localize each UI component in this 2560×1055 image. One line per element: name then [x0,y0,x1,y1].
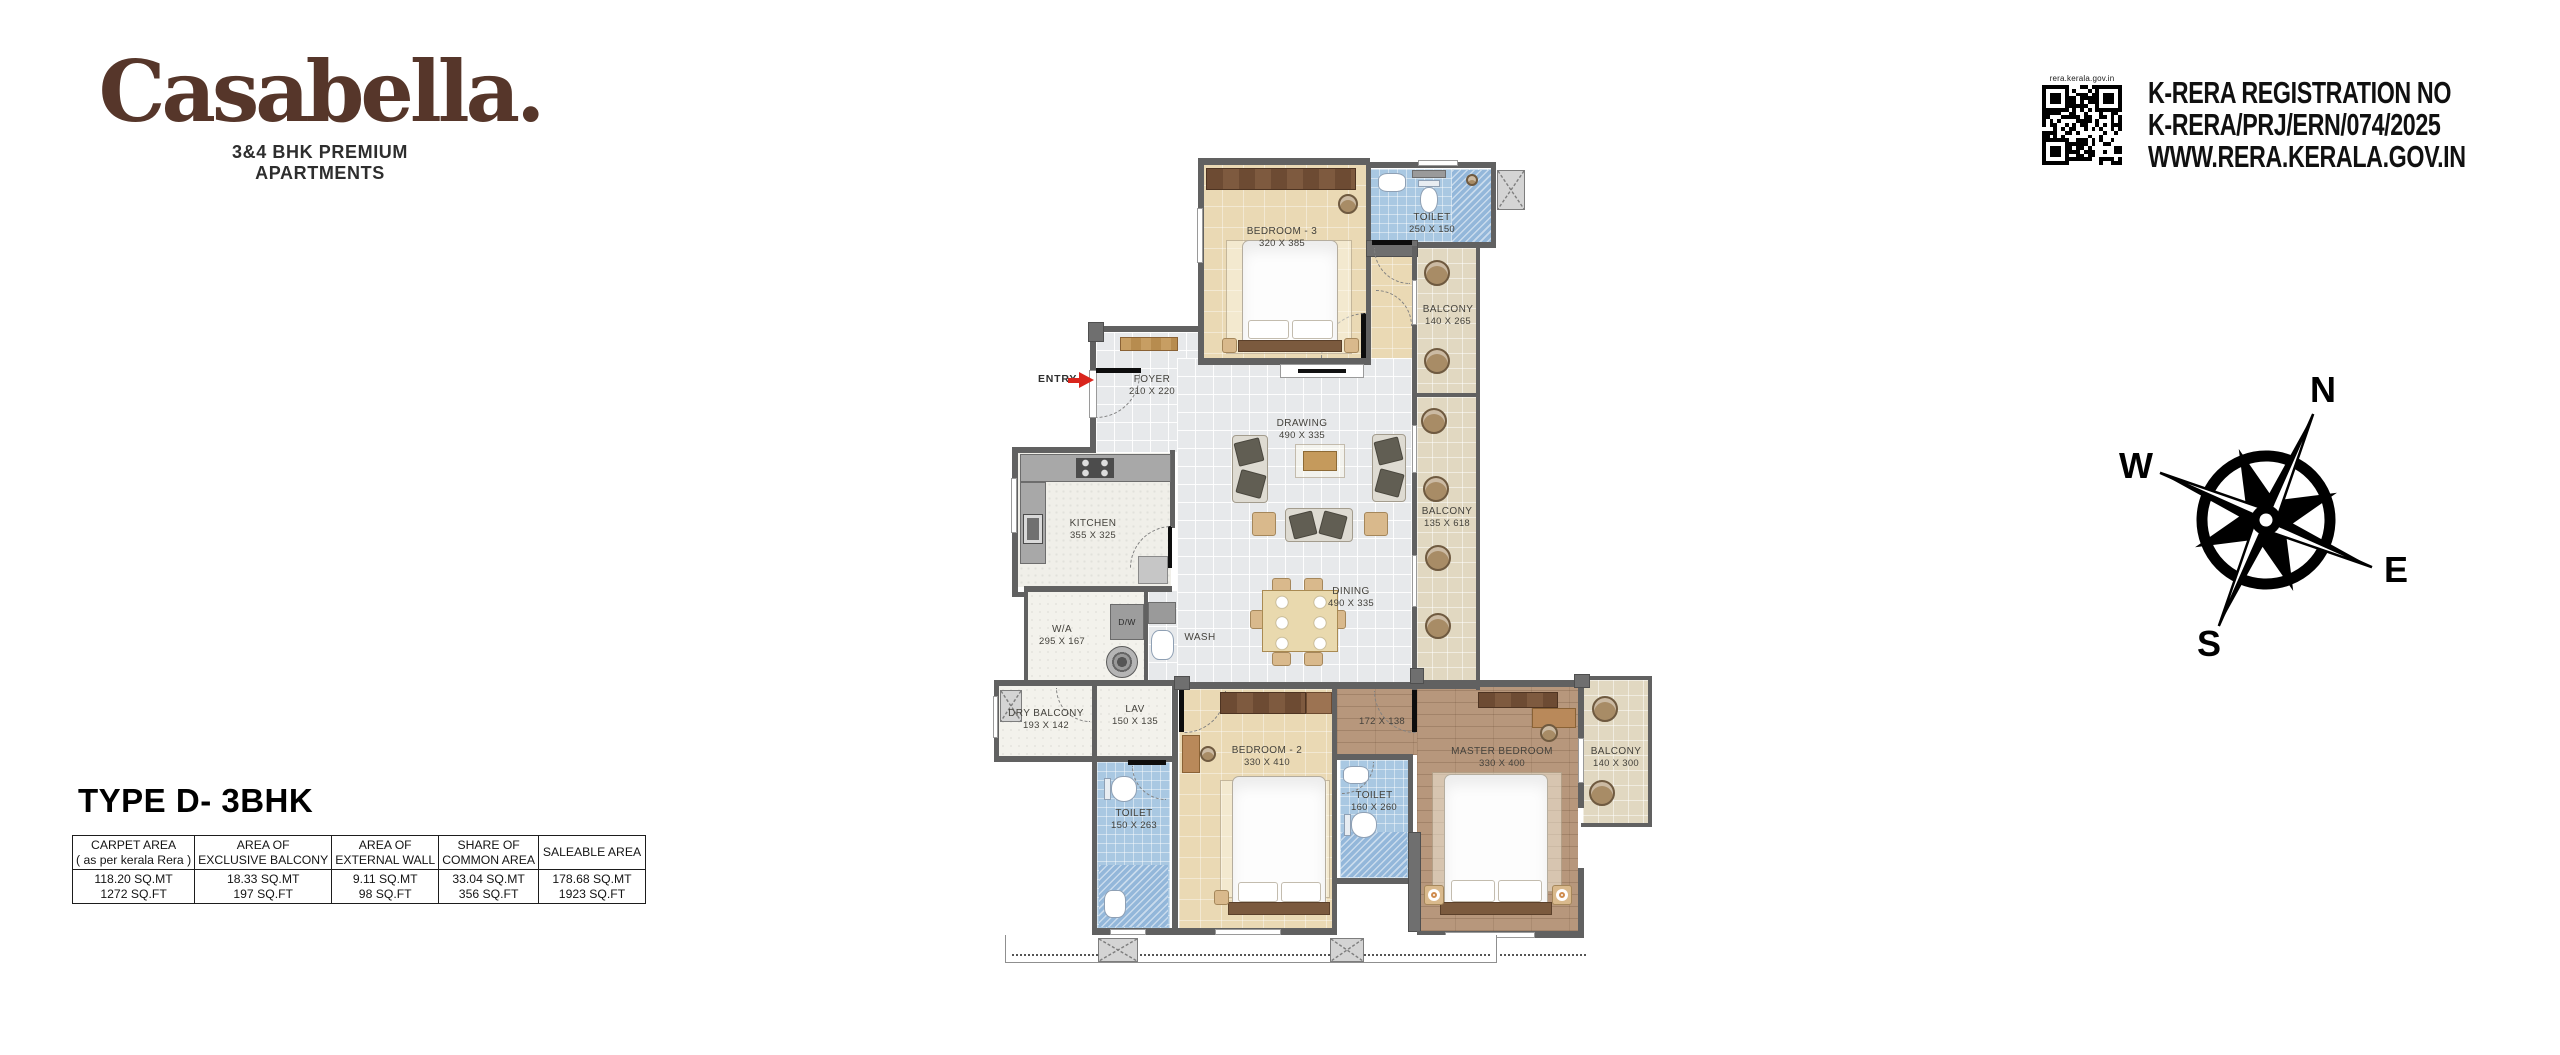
wc-icon [1111,776,1137,802]
bedroom2-side-table [1214,890,1229,905]
rera-line3: WWW.RERA.KERALA.GOV.IN [2148,141,2560,173]
header-external-wall: AREA OFEXTERNAL WALL [332,836,439,870]
duct-shaft [1497,170,1525,210]
qr-code [2042,85,2122,165]
side-table [1364,512,1388,536]
tv-icon [1298,369,1346,373]
duct-shaft [1330,938,1364,962]
wall [1578,868,1584,932]
wall [1024,592,1028,684]
qr-block: rera.kerala.gov.in [2040,74,2124,165]
hob-icon [1076,458,1114,478]
wc-tank [1418,180,1440,187]
toilet-master-label: TOILET160 X 260 [1351,790,1397,813]
compass-west-label: W [2119,445,2153,486]
compass-rose: N E S W [2106,360,2426,680]
dining-chair [1304,652,1323,666]
area-table: CARPET AREA( as per kerala Rera ) AREA O… [72,835,646,904]
duct-shaft [1098,938,1138,962]
header-common-area: SHARE OFCOMMON AREA [439,836,539,870]
bedroom2-chair [1200,746,1216,762]
wc-tank [1104,778,1111,800]
rera-line1: K-RERA REGISTRATION NO [2148,77,2560,109]
balcony-chair [1421,408,1447,434]
fridge-icon [1138,556,1168,584]
value-saleable-area: 178.68 SQ.MT1923 SQ.FT [539,870,646,904]
window [1412,425,1417,473]
washing-machine-icon [1106,646,1138,678]
window [1412,555,1417,607]
value-common-area: 33.04 SQ.MT356 SQ.FT [439,870,539,904]
balcony-chair [1424,348,1450,374]
area-table-value-row: 118.20 SQ.MT1272 SQ.FT 18.33 SQ.MT197 SQ… [73,870,646,904]
wall [1177,682,1420,689]
toilet-top-label: TOILET250 X 150 [1409,212,1455,235]
wc-icon [1351,812,1377,838]
brand-tagline-line2: APARTMENTS [85,163,555,184]
foyer-bench [1120,337,1178,351]
washbasin-icon [1104,890,1126,918]
wall [1332,682,1337,934]
wall [1417,393,1477,397]
header-carpet-area: CARPET AREA( as per kerala Rera ) [73,836,195,870]
wall [1417,684,1477,689]
dining-chair [1272,652,1291,666]
rera-line2: K-RERA/PRJ/ERN/074/2025 [2148,109,2560,141]
area-table-header-row: CARPET AREA( as per kerala Rera ) AREA O… [73,836,646,870]
bedroom2-pillow [1238,882,1278,902]
window [1418,160,1458,166]
wall [1092,680,1097,764]
side-table [1252,512,1276,536]
coffee-table [1303,451,1337,471]
window [1011,478,1017,533]
table-lamp-icon [1428,889,1440,901]
toilet-bed2-label: TOILET150 X 263 [1111,808,1157,831]
rera-registration-block: K-RERA REGISTRATION NO K-RERA/PRJ/ERN/07… [2148,77,2560,173]
bedroom2-wardrobe [1220,692,1306,714]
header-saleable-area: SALEABLE AREA [539,836,646,870]
balcony-chair [1423,476,1449,502]
bedroom3-headboard [1238,340,1342,352]
wall [1172,680,1178,934]
balcony-master-label: BALCONY140 X 300 [1591,746,1642,769]
wall [1491,162,1496,248]
washbasin-icon [1343,766,1369,784]
balcony-chair [1424,260,1450,286]
bedroom3-side-table [1344,338,1359,353]
balcony-top-label: BALCONY140 X 265 [1423,304,1474,327]
bedroom2-desk [1182,735,1200,773]
entry-arrow-icon [1079,372,1094,388]
wc-tank [1344,814,1351,836]
wall-column [1574,674,1590,688]
balcony-chair [1592,696,1618,722]
wall [1092,326,1202,332]
washbasin-icon [1378,173,1406,192]
wall [1198,158,1370,165]
wall [1581,823,1652,827]
bedroom3-wardrobe [1206,168,1356,190]
bedroom3-label: BEDROOM - 3320 X 385 [1247,226,1318,249]
value-exclusive-balcony: 18.33 SQ.MT197 SQ.FT [195,870,332,904]
wall [1476,246,1480,690]
wall [1417,242,1496,248]
entry-door-leaf [1096,368,1141,373]
foyer-label: FOYER210 X 220 [1129,374,1175,397]
wall [1581,676,1652,680]
table-lamp-icon [1556,889,1568,901]
wall-column [1088,322,1104,342]
wc-icon [1420,187,1438,213]
value-carpet-area: 118.20 SQ.MT1272 SQ.FT [73,870,195,904]
dishwasher-label: D/W [1118,617,1135,627]
qr-module [2118,161,2122,165]
passage-label: 172 X 138 [1359,716,1405,727]
wall [996,680,1176,686]
toilet-master-shower [1341,832,1407,877]
value-external-wall: 9.11 SQ.MT98 SQ.FT [332,870,439,904]
bedroom3-pillow [1248,320,1289,339]
master-pillow [1498,880,1542,902]
balcony-chair [1425,613,1451,639]
toilet-bed2-door-leaf [1128,760,1166,765]
compass-east-label: E [2384,549,2408,590]
wall-column [1410,668,1424,684]
window [1197,208,1203,263]
sink-icon [1023,514,1043,544]
ledge-dotted-line [1500,954,1586,956]
window [993,696,998,738]
wall [994,756,1094,762]
wall [1014,447,1096,453]
dining-table [1262,590,1338,652]
kitchen-label: KITCHEN355 X 325 [1070,518,1117,541]
shower-head-icon [1466,174,1478,186]
toilet-shelf [1412,170,1446,178]
wall [1335,878,1413,884]
window [1578,738,1584,783]
wash-label: WASH [1184,632,1215,644]
bedroom3-side-table [1222,338,1237,353]
work-area-label: W/A295 X 167 [1039,624,1085,647]
bedroom3-pillow [1292,320,1333,339]
wash-counter [1148,602,1176,624]
bedroom3-chair [1338,194,1358,214]
dining-label: DINING490 X 335 [1328,586,1374,609]
brand-block: Casabella. 3&4 BHK PREMIUM APARTMENTS [85,42,555,184]
bedroom2-headboard [1228,902,1330,915]
balcony-right-label: BALCONY135 X 618 [1422,506,1473,529]
page: { "brand": { "logo": "Casabella.", "tagl… [0,0,2560,1055]
wall [1366,162,1371,365]
toilet-top-door-leaf [1372,240,1412,245]
ledge-dotted-line [1012,954,1490,956]
plan-title: TYPE D- 3BHK [78,782,313,820]
drawing-label: DRAWING490 X 335 [1277,418,1328,441]
master-desk-stool [1540,724,1558,742]
balcony-chair [1425,545,1451,571]
dishwasher: D/W [1110,604,1144,640]
dry-balcony-label: DRY BALCONY193 X 142 [1008,708,1084,731]
bedroom2-wardrobe [1306,692,1332,714]
balcony-chair [1589,780,1615,806]
master-headboard [1440,902,1552,915]
wall [1648,676,1652,827]
bedroom2-label: BEDROOM - 2330 X 410 [1232,745,1303,768]
wall-column [1408,832,1421,932]
wall [1024,586,1172,592]
master-bedroom-label: MASTER BEDROOM330 X 400 [1451,746,1553,769]
floor-plan: D/W ENTRY BEDROOM - 3320 X 385 TOILET250… [980,90,1680,990]
header-exclusive-balcony: AREA OFEXCLUSIVE BALCONY [195,836,332,870]
wall [1335,754,1413,760]
bedroom2-pillow [1281,882,1321,902]
bottom-ledge [1005,935,1497,963]
qr-caption: rera.kerala.gov.in [2040,74,2124,84]
master-pillow [1451,880,1495,902]
wash-basin-icon [1151,630,1174,660]
wall [1092,762,1097,934]
lav-label: LAV150 X 135 [1112,704,1158,727]
master-wardrobe [1478,692,1558,708]
compass-south-label: S [2197,623,2221,664]
balcony-right-floor [1417,397,1477,685]
wall-column [1174,676,1190,690]
logo-casabella: Casabella. [85,42,555,142]
brand-tagline-line1: 3&4 BHK PREMIUM [85,142,555,163]
window [1412,280,1417,325]
compass-north-label: N [2310,369,2336,410]
